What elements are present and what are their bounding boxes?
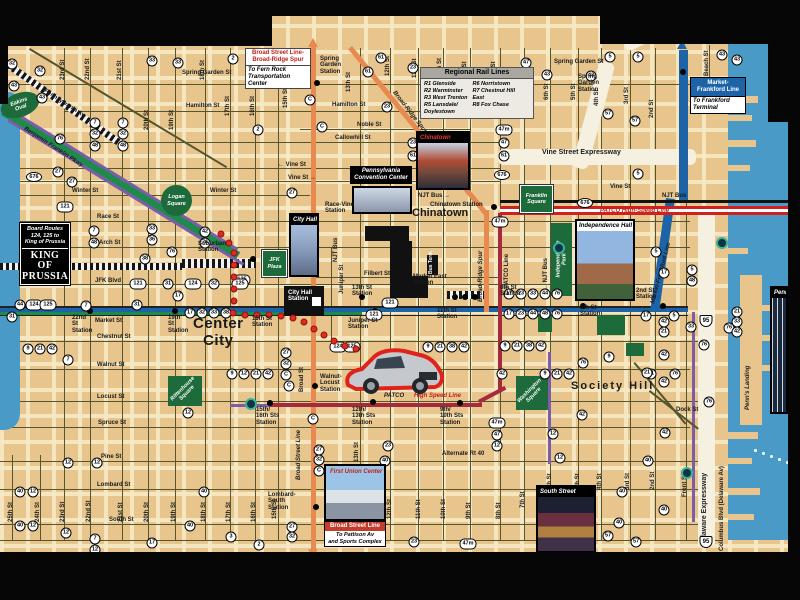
washington-square-label: Washington Square: [517, 378, 548, 409]
route-badge: 48: [90, 141, 101, 152]
route-badge: 17: [659, 268, 670, 279]
schuylkill-river: [0, 92, 20, 430]
map-border: [0, 552, 800, 600]
route-dot: [231, 298, 238, 305]
route-badge: 31: [163, 279, 174, 290]
street-label: Dock St: [676, 407, 698, 413]
route-badge: 61: [363, 67, 374, 78]
route-dot: [231, 250, 238, 257]
suburban-station-platform: [182, 259, 256, 268]
route-badge: 12: [28, 521, 39, 532]
ferry-dot: [770, 455, 773, 458]
jfk-plaza: JFK Plaza: [262, 250, 287, 277]
photo-independence: Independence Hall: [575, 219, 635, 301]
route-badge: 32: [7, 59, 18, 70]
pier: [728, 115, 752, 121]
route-badge: 76: [699, 340, 710, 351]
street: [205, 48, 206, 540]
regional-rail-col2: R6 Norristown R7 Chestnut Hill East R8 F…: [473, 81, 515, 115]
street-label-vertical: 18th St: [201, 502, 207, 522]
street-label-vertical: 16th St: [251, 502, 257, 522]
route-badge: 31: [132, 300, 143, 311]
city-hall-courtyard: [312, 297, 321, 306]
station-label: 11th St Station: [437, 308, 457, 321]
highway-shield: 676: [577, 198, 593, 208]
street-label-vertical: 22nd St: [86, 500, 92, 522]
route-badge: 44: [540, 289, 551, 300]
street-label: Lombard St: [97, 482, 130, 488]
route-badge: 42: [497, 369, 508, 380]
map-border: [0, 16, 8, 104]
street-label: Filbert St: [364, 271, 390, 277]
street-label-vertical: Broad Street Line: [296, 430, 302, 480]
route-badge: 12: [492, 441, 503, 452]
route-badge: 61: [499, 151, 510, 162]
route-badge: 47m: [489, 418, 506, 429]
route-badge: 9: [604, 352, 615, 363]
route-badge: 5: [633, 52, 644, 63]
route-badge: C: [284, 381, 295, 392]
route-badge: 23: [409, 537, 420, 548]
route-badge: 124: [185, 279, 202, 290]
station-label: City Hall Station: [288, 290, 312, 303]
station-label: 15th St Station: [252, 316, 272, 329]
route-badge: 27: [281, 348, 292, 359]
photo-south-street: South Street: [536, 485, 596, 553]
street-label: NJT Bus: [662, 193, 686, 199]
highway-shield: 95: [700, 536, 713, 548]
park-green: [597, 315, 625, 335]
route-badge: 40: [659, 505, 670, 516]
route-badge: 21: [512, 341, 523, 352]
route-badge: 7: [118, 118, 129, 129]
street-label: Vine St: [610, 184, 630, 190]
convention-center-building: [365, 226, 409, 241]
route-badge: 27: [287, 188, 298, 199]
route-badge: 12: [63, 458, 74, 469]
street-label: ← Vine St: [278, 162, 306, 168]
route-badge: 38: [447, 342, 458, 353]
pier: [728, 165, 750, 171]
street-label-vertical: 18th St: [200, 60, 206, 80]
pattison-note: To Pattison Av and Sports Complex: [324, 531, 386, 547]
route-badge: 32: [90, 129, 101, 140]
street-label-vertical: Beach St: [704, 50, 710, 76]
logan-square: Logan Square: [161, 185, 192, 216]
street-label-vertical: 2nd St: [649, 100, 655, 118]
map-border: [0, 16, 272, 46]
station-dot: [172, 308, 178, 314]
route-badge: 48: [89, 238, 100, 249]
patco-vertical: [498, 213, 502, 389]
route-badge: 40: [185, 521, 196, 532]
station-label: 15th/ 16th Sts Station: [256, 407, 279, 426]
route-badge: 5: [605, 52, 616, 63]
route-badge: 42: [577, 410, 588, 421]
route-badge: 9: [23, 344, 34, 355]
kop-title: KING OF PRUSSIA: [22, 248, 68, 283]
street-label: Callowhill St: [335, 135, 371, 141]
station-dot: [491, 204, 497, 210]
route-badge: 12: [28, 487, 39, 498]
route-badge: 12: [548, 429, 559, 440]
station-label: Suburban Station: [198, 241, 226, 254]
eakins-oval-label: Eakins Oval: [10, 96, 31, 113]
street-label-vertical: NJT Bus: [333, 238, 339, 262]
route-badge: 57: [631, 537, 642, 548]
route-badge: 12: [183, 408, 194, 419]
pier: [728, 458, 752, 464]
route-badge: 76: [578, 358, 589, 369]
station-dot: [370, 399, 376, 405]
route-badge: 9: [227, 369, 238, 380]
street: [40, 455, 41, 540]
chinatown-image: [418, 143, 468, 188]
route-badge: 47m: [460, 539, 477, 550]
pier: [728, 248, 748, 254]
route-dot: [301, 319, 308, 326]
route-badge: 17: [504, 309, 515, 320]
station-label: 13th St Station: [352, 285, 372, 298]
street-label-vertical: 7th St: [520, 491, 526, 508]
photo-first-union: First Union Center: [324, 464, 386, 521]
route-badge: 3: [226, 532, 237, 543]
route-badge: 42: [732, 327, 743, 338]
convention-image: [354, 188, 410, 212]
route-badge: 7: [89, 226, 100, 237]
ferry-dot: [754, 449, 757, 452]
street-label: JFK Blvd: [95, 278, 121, 284]
pier: [728, 140, 756, 147]
jfk-plaza-label: JFK Plaza: [267, 257, 281, 269]
street-label-vertical: 17th St: [226, 502, 232, 522]
station-label: Spring Garden Station: [320, 56, 341, 75]
street: [443, 48, 444, 540]
street: [230, 48, 231, 540]
route-dot: [290, 315, 297, 322]
route-badge: 2: [254, 540, 265, 551]
street-label: Locust St: [97, 394, 124, 400]
station-dot: [452, 294, 458, 300]
route-badge: 23: [382, 102, 393, 113]
street-label-vertical: Juniper St: [339, 265, 345, 294]
street-label-vertical: 24th St: [35, 502, 41, 522]
pier: [728, 432, 758, 439]
route-badge: 42: [659, 350, 670, 361]
logan-square-label: Logan Square: [167, 194, 186, 206]
route-badge: 17: [173, 291, 184, 302]
regional-rail-title: Regional Rail Lines: [421, 68, 533, 79]
route-badge: 7: [90, 534, 101, 545]
street-label-vertical: 17th St: [225, 96, 231, 116]
route-badge: 121: [130, 279, 147, 290]
route-badge: 9: [540, 369, 551, 380]
street-label: Market St: [95, 318, 122, 324]
route-badge: 43: [37, 93, 48, 104]
street-label-vertical: 19th St: [171, 502, 177, 522]
district-label: Society Hill: [571, 381, 654, 393]
route-badge: 44: [15, 300, 26, 311]
route-badge: 40: [617, 487, 628, 498]
route-badge: 47m: [492, 217, 509, 228]
street-label: PATCO High-Speed Line: [600, 208, 669, 214]
south-street-image: [538, 497, 594, 551]
independence-park: Independence Park: [551, 223, 572, 296]
route-badge: 2: [253, 125, 264, 136]
independence-image: [577, 231, 633, 299]
king-of-prussia-box: Board Routes 124, 125 to King of Prussia…: [20, 223, 70, 285]
street: [0, 427, 690, 428]
station-label: Walnut- Locust Station: [320, 374, 342, 393]
photo-caption: Independence Hall: [577, 221, 633, 231]
route-badge: 7: [81, 301, 92, 312]
street-label-vertical: 20th St: [144, 110, 150, 130]
screenshot: Broad Street Line- Broad-Ridge Spur To F…: [0, 0, 800, 600]
photo-caption: First Union Center: [328, 467, 384, 477]
route-badge: 43: [542, 70, 553, 81]
route-dot: [321, 332, 328, 339]
street-label-vertical: 11th St: [416, 499, 422, 519]
station-label: Market East Station: [413, 274, 447, 287]
route-badge: 36: [147, 235, 158, 246]
street-label-vertical: 21st St: [117, 60, 123, 80]
station-label: 9th/ 10th Sts Station: [440, 407, 463, 426]
street-label-vertical: 4th St: [597, 473, 603, 490]
route-badge: 48: [540, 309, 551, 320]
pier: [728, 488, 760, 495]
rittenhouse-square-label: Rittenhouse Square: [169, 375, 200, 406]
route-badge: 42: [459, 342, 470, 353]
market-frankford-line-legend: Market- Frankford Line To Frankford Term…: [690, 77, 746, 114]
route-badge: C: [281, 370, 292, 381]
station-dot: [680, 69, 686, 75]
street-label-vertical: 9th St: [466, 502, 472, 519]
photo-convention: [352, 186, 412, 214]
route-badge: 17: [147, 538, 158, 549]
route-badge: 21: [35, 344, 46, 355]
station-label: 12th/ 13th Sts Station: [352, 407, 375, 426]
route-badge: 125: [40, 300, 57, 311]
route-badge: 33: [209, 308, 220, 319]
route-badge: 12: [61, 528, 72, 539]
district-label: Center City: [193, 316, 244, 349]
route-badge: 76: [704, 397, 715, 408]
street: [255, 48, 256, 540]
broad-ridge-spur-vertical: [484, 210, 489, 312]
route-badge: 33: [173, 58, 184, 69]
route-badge: 42: [47, 344, 58, 355]
station-label: Race-Vine Station: [325, 202, 354, 215]
street-label-vertical: Columbus Blvd (Delaware Av): [719, 466, 725, 551]
route-badge: 7: [90, 118, 101, 129]
station-dot: [462, 294, 468, 300]
street-label: Walnut St: [97, 362, 124, 368]
route-badge: 38: [524, 341, 535, 352]
spur-note: To Fern Rock Transportation Center: [245, 66, 311, 90]
route-badge: 61: [376, 53, 387, 64]
route-badge: 57: [630, 116, 641, 127]
route-badge: 47: [499, 138, 510, 149]
station-label: 2nd St Station: [636, 288, 656, 301]
transit-map: Broad Street Line- Broad-Ridge Spur To F…: [0, 0, 800, 600]
route-badge: 32: [35, 66, 46, 77]
rittenhouse-square: Rittenhouse Square: [168, 376, 202, 406]
photo-city-hall: City Hall: [289, 213, 319, 277]
route-badge: 42: [263, 369, 274, 380]
route-dot: [230, 310, 237, 317]
street-label: Race St: [97, 214, 119, 220]
station-dot: [314, 80, 320, 86]
route-badge: 76: [552, 309, 563, 320]
station-dot: [457, 400, 463, 406]
route-dot: [231, 262, 238, 269]
route-badge: 48: [687, 276, 698, 287]
route-badge: 12: [239, 369, 250, 380]
franklin-square-label: Franklin Square: [526, 193, 547, 205]
route-badge: 47: [492, 430, 503, 441]
route-badge: 121: [57, 202, 74, 213]
route-dot: [242, 312, 249, 319]
street-label-vertical: PATCO Line: [504, 254, 510, 288]
route-badge: C: [317, 122, 328, 133]
route-badge: 23: [516, 309, 527, 320]
street-label-vertical: 13th St: [354, 442, 360, 462]
route-badge: C: [308, 414, 319, 425]
route-badge: 33: [147, 56, 158, 67]
street-label-vertical: 3rd St: [624, 87, 630, 104]
photo-caption: South Street: [538, 487, 594, 497]
convention-center-caption: Pennsylvania Convention Center: [350, 166, 412, 184]
street-label: Pine St: [101, 454, 121, 460]
photo-caption: Chinatown: [418, 133, 468, 143]
street-label: Spring Garden St: [182, 70, 231, 76]
street-label-vertical: 19th St: [169, 110, 175, 130]
route-badge: 42: [200, 227, 211, 238]
station-dot: [660, 303, 666, 309]
street-label-vertical: 25th St: [8, 502, 14, 522]
route-badge: 40: [15, 521, 26, 532]
city-hall-image: [291, 225, 317, 275]
street-label: Hamilton St: [332, 102, 365, 108]
street-label: Alternate Rt 40: [442, 451, 484, 457]
station-label: 22nd St Station: [72, 315, 92, 334]
route-badge: 21: [251, 369, 262, 380]
street-label-vertical: 23rd St: [60, 60, 66, 80]
route-badge: 32: [209, 279, 220, 290]
kop-note: Board Routes 124, 125 to King of Prussia: [22, 226, 68, 246]
route-dot: [231, 286, 238, 293]
route-badge: 44: [528, 309, 539, 320]
route-badge: 43: [732, 55, 743, 66]
station-dot: [472, 294, 478, 300]
street-label-vertical: 13th St: [346, 72, 352, 92]
highway-shield: 676: [494, 170, 510, 180]
street-label: Vine St →: [288, 175, 316, 181]
park-green: [626, 343, 644, 356]
franklin-square: Franklin Square: [520, 185, 553, 213]
street: [0, 195, 310, 196]
photo-chinatown: Chinatown: [416, 131, 470, 190]
street-label-vertical: ← NJT Bus: [543, 258, 549, 290]
route-dot: [278, 313, 285, 320]
ferry-dot: [778, 458, 781, 461]
route-badge: 7: [63, 355, 74, 366]
street-label-vertical: Broad St: [299, 367, 305, 392]
route-badge: 21: [642, 368, 653, 379]
route-badge: 23: [408, 63, 419, 74]
mfl-note: To Frankford Terminal: [690, 97, 746, 114]
street: [0, 401, 710, 402]
street-label: Vine Street Expressway: [542, 149, 621, 157]
route-dot: [311, 326, 318, 333]
route-badge: 9: [500, 341, 511, 352]
car-illustration: [341, 344, 445, 398]
spur-title: Broad Street Line- Broad-Ridge Spur: [245, 48, 311, 66]
street-label-vertical: Bus Term: [429, 251, 434, 274]
street-label-vertical: 21st St: [118, 502, 124, 522]
street-label-vertical: 12th St: [387, 499, 393, 519]
station-label: Juniper St Station: [348, 318, 377, 331]
line-arrow-up: [308, 38, 318, 47]
route-badge: 57: [603, 109, 614, 120]
street-label-vertical: 20th St: [144, 502, 150, 522]
street-label-vertical: 15th St: [283, 88, 289, 108]
route-badge: 5: [669, 311, 680, 322]
street-label: Arch St: [99, 240, 120, 246]
route-badge: 2: [228, 54, 239, 65]
station-label: Spring Garden Station: [578, 74, 599, 93]
route-badge: 23: [383, 441, 394, 452]
route-badge: 33: [147, 224, 158, 235]
route-badge: 32: [197, 308, 208, 319]
njt-purple-front: [692, 312, 695, 522]
street: [331, 248, 332, 350]
station-dot: [312, 383, 318, 389]
route-badge: 121: [382, 298, 399, 309]
route-badge: 76: [670, 369, 681, 380]
route-badge: 17: [641, 311, 652, 322]
regional-rail-lines-legend: Regional Rail Lines R1 Glenside R2 Warmi…: [420, 67, 534, 119]
map-border: [788, 0, 800, 600]
penns-image: [772, 298, 786, 412]
route-badge: 42: [660, 428, 671, 439]
regional-rail-col1: R1 Glenside R2 Warminster R3 West Trento…: [424, 81, 468, 115]
map-border: [600, 16, 788, 44]
mfl-title: Market- Frankford Line: [690, 77, 746, 97]
patco-logo-icon: [681, 467, 693, 479]
route-badge: 40: [199, 487, 210, 498]
route-badge: 5: [687, 265, 698, 276]
route-badge: 32: [281, 359, 292, 370]
patco-logo-icon: [716, 237, 728, 249]
street-label-vertical: 10th St: [441, 499, 447, 519]
photo-penns: Penn's Landing: [770, 286, 788, 414]
highway-shield: 676: [26, 172, 42, 182]
street-label-vertical: 22nd St: [85, 58, 91, 80]
station-dot: [267, 400, 273, 406]
photo-caption: Penn's Landing: [772, 288, 786, 298]
car-photo: [341, 344, 445, 398]
street: [12, 455, 13, 540]
street: [0, 461, 700, 462]
route-badge: 33: [686, 322, 697, 333]
route-badge: 32: [287, 532, 298, 543]
route-badge: 21: [659, 327, 670, 338]
route-badge: 33: [528, 289, 539, 300]
street-label: Winter St: [210, 188, 236, 194]
route-badge: 12: [92, 458, 103, 469]
street-label: Noble St: [357, 122, 381, 128]
